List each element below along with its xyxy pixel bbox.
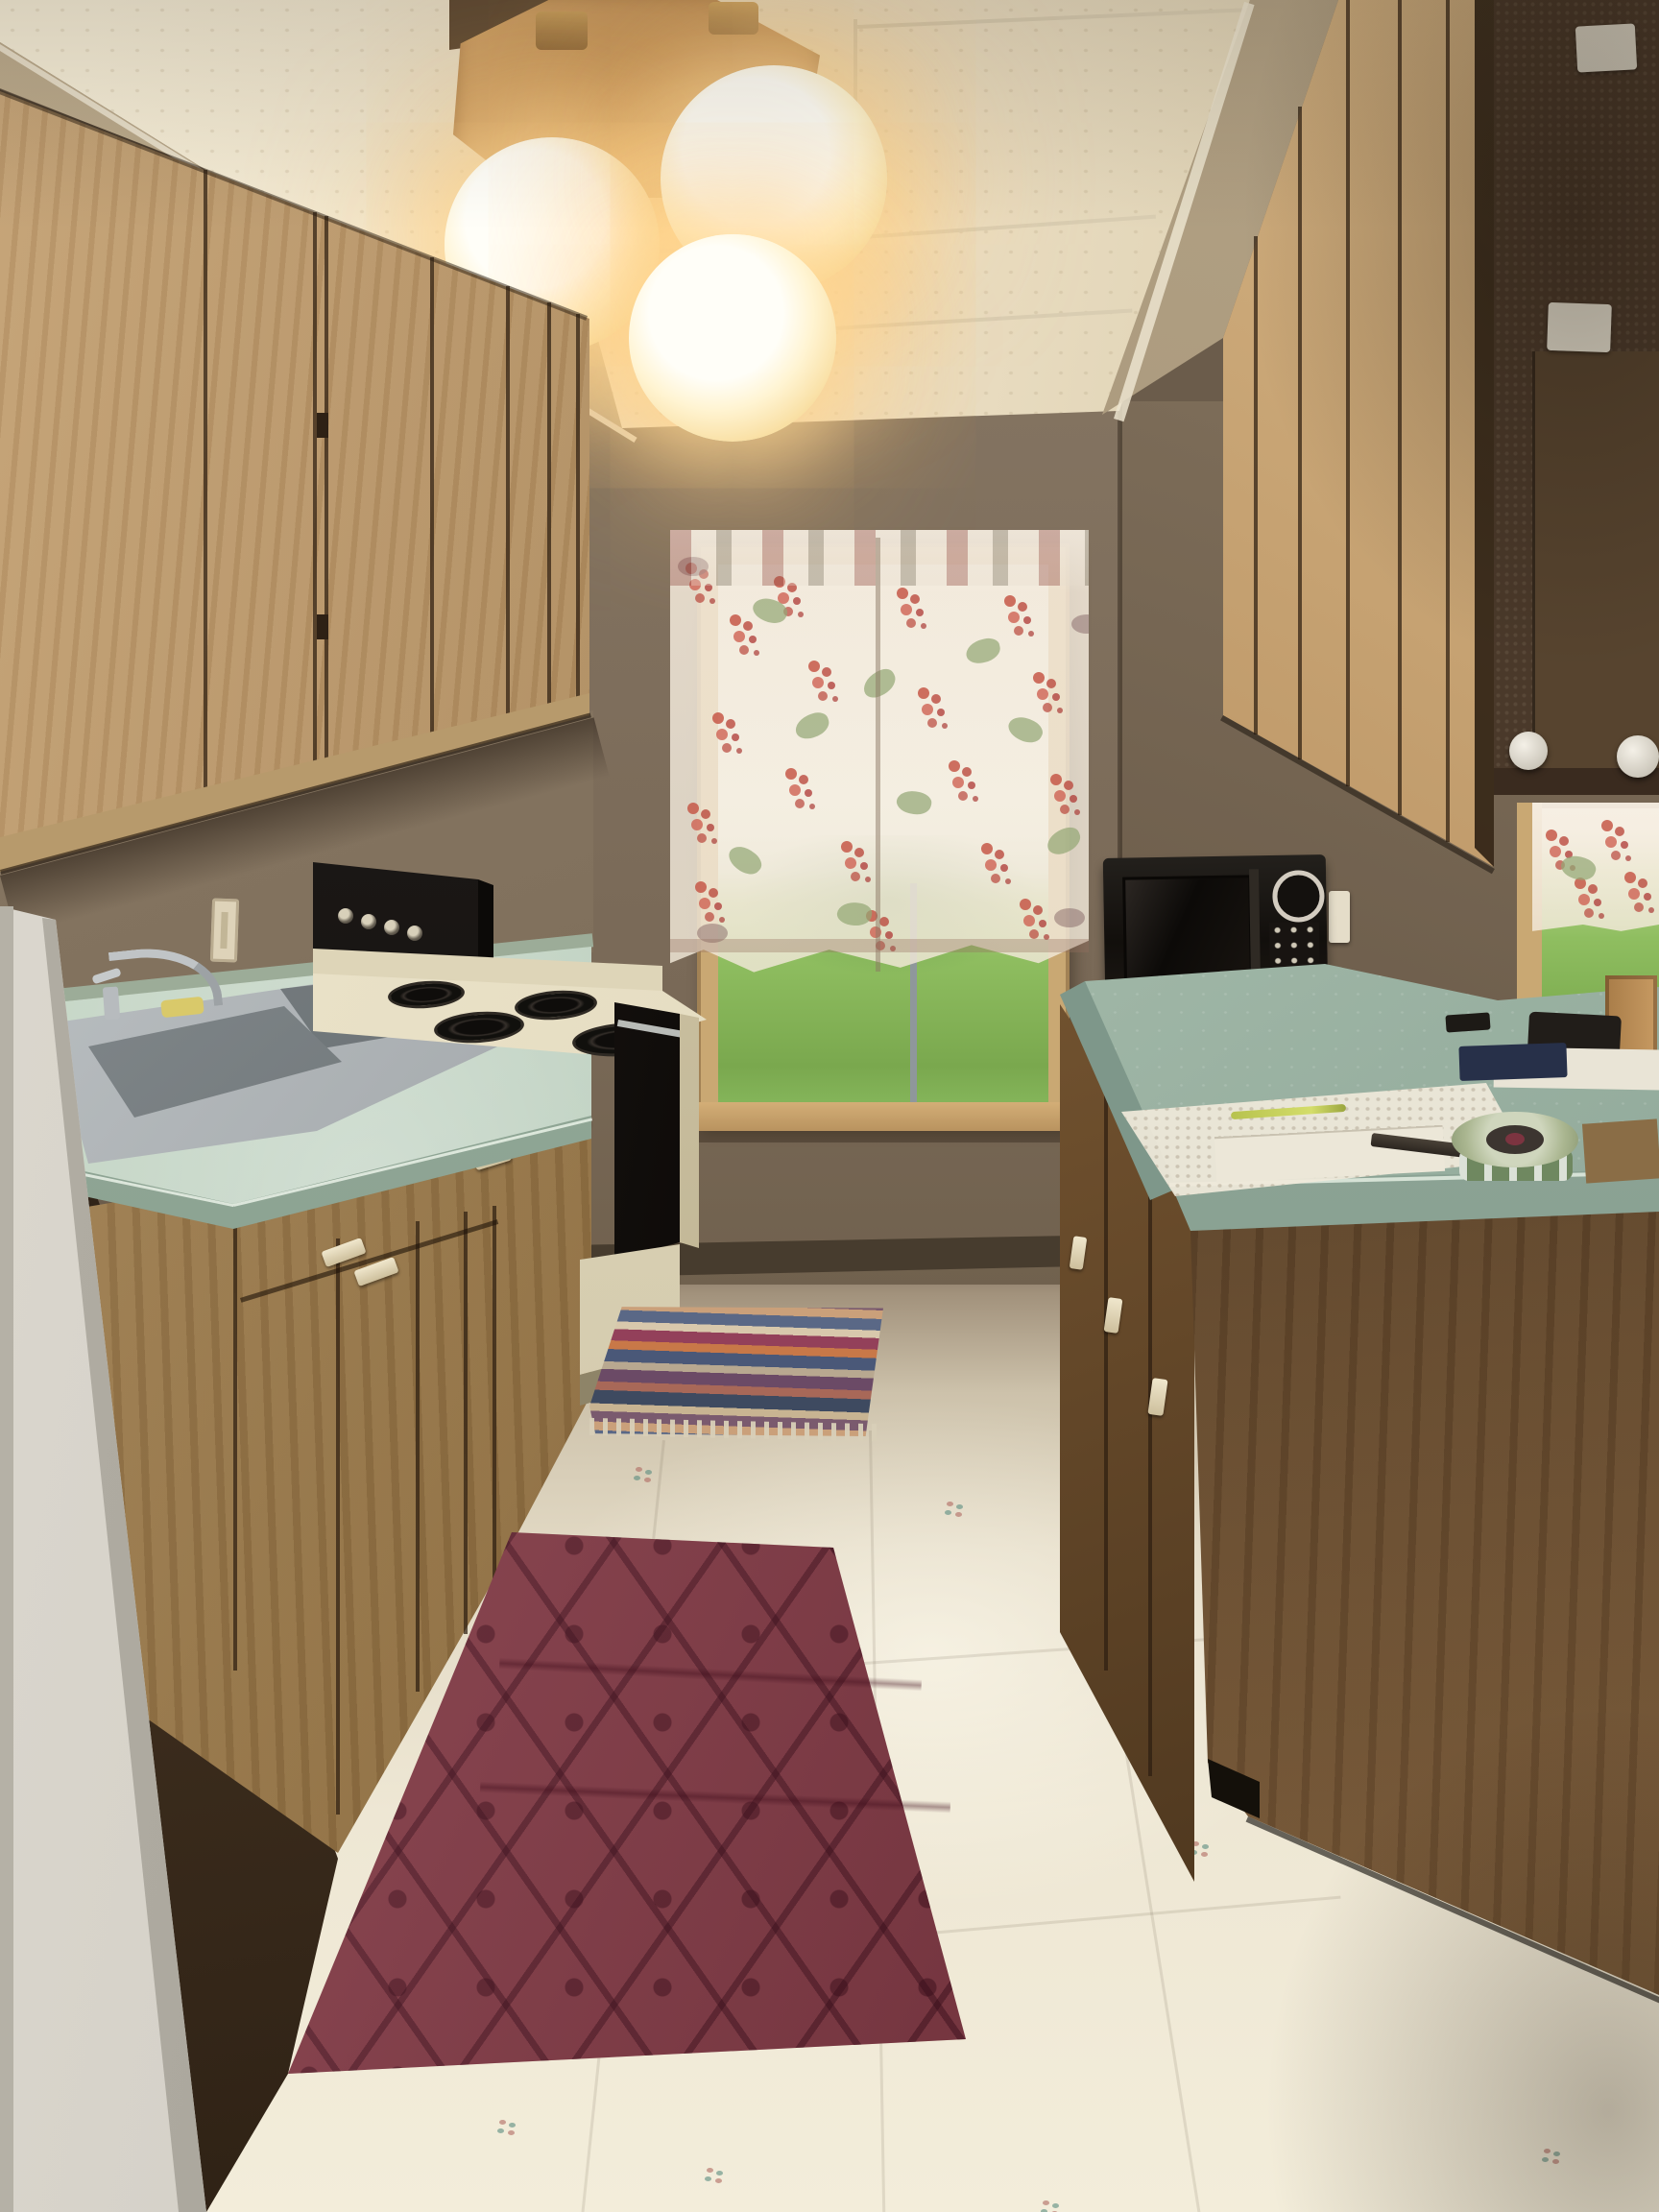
floor-motif	[1043, 2200, 1049, 2205]
wall-outlet	[1329, 891, 1350, 943]
cabinet-hinge	[317, 413, 328, 438]
floor-motif	[499, 2120, 506, 2125]
light-globe	[629, 234, 836, 442]
floor-motif	[947, 1502, 953, 1506]
cabinet-door-seam	[416, 1221, 420, 1692]
grape-print	[785, 768, 797, 780]
grape-print	[1020, 899, 1031, 910]
grape-print	[712, 712, 724, 724]
microwave-dial	[1272, 870, 1325, 923]
cabinet-hinge	[317, 614, 328, 639]
stove-knob	[407, 926, 422, 941]
grape-print	[687, 803, 699, 814]
grape-print	[949, 760, 960, 772]
spool-hub-dot	[1505, 1133, 1525, 1145]
cabinet-door-seam	[313, 212, 317, 787]
kitchen-photo	[0, 0, 1659, 2212]
cabinet-door-seam	[1104, 1070, 1108, 1671]
leaf-print	[895, 787, 934, 818]
grape-print	[981, 843, 993, 854]
grape-print	[1004, 595, 1016, 607]
leaf-print	[1044, 824, 1084, 858]
cabinet-door-seam	[325, 216, 328, 784]
print-smudge	[1054, 908, 1085, 927]
navy-notebook	[1458, 1043, 1567, 1081]
stove-knob	[361, 914, 376, 929]
window-apron-shadow	[689, 1131, 1077, 1142]
curtain-split	[876, 538, 880, 972]
cabinet-door-seam	[336, 1238, 340, 1815]
shadow-vignette	[1152, 1536, 1659, 2212]
cabinet-door-seam	[547, 302, 551, 724]
cabinet-door-seam	[464, 1212, 468, 1634]
grape-print	[1033, 672, 1045, 684]
switch-rocker	[220, 912, 228, 949]
leaf-print	[836, 901, 874, 928]
curtain-hem	[670, 939, 1089, 952]
shadow-vignette	[0, 0, 1659, 230]
stove-knob	[384, 920, 399, 935]
cabinet-door-seam	[576, 314, 580, 716]
door-jamb-outer-strip	[0, 906, 13, 2212]
stove-knob	[338, 908, 353, 924]
light-switch	[210, 899, 239, 963]
leaf-print	[750, 593, 791, 629]
leaf-print	[724, 840, 765, 880]
grape-print	[695, 881, 707, 893]
cabinet-corner-seam	[233, 1212, 237, 1671]
cabinet-door-seam	[493, 1206, 496, 1601]
grape-print	[730, 614, 741, 626]
microwave-door-window	[1122, 875, 1253, 980]
cardboard-piece	[1582, 1118, 1659, 1183]
grape-print	[1624, 872, 1636, 883]
grape-print	[841, 841, 853, 853]
leaf-print	[792, 709, 832, 742]
leaf-print	[1004, 711, 1046, 748]
grape-print	[897, 588, 908, 599]
leaf-print	[964, 637, 1002, 666]
floor-motif	[707, 2168, 713, 2173]
cabinet-door-seam	[506, 286, 510, 734]
cabinet-door-seam	[430, 257, 434, 756]
faucet-base	[103, 986, 120, 1020]
grape-print	[1050, 774, 1062, 785]
grape-print	[918, 687, 929, 699]
floor-motif	[636, 1467, 642, 1472]
center-window-sill	[689, 1102, 1077, 1131]
cabinet-door-seam	[204, 170, 207, 817]
black-object	[1445, 1012, 1490, 1032]
grape-print	[808, 661, 820, 672]
microwave-handle	[1249, 869, 1261, 976]
striped-rag-rug	[589, 1300, 883, 1436]
